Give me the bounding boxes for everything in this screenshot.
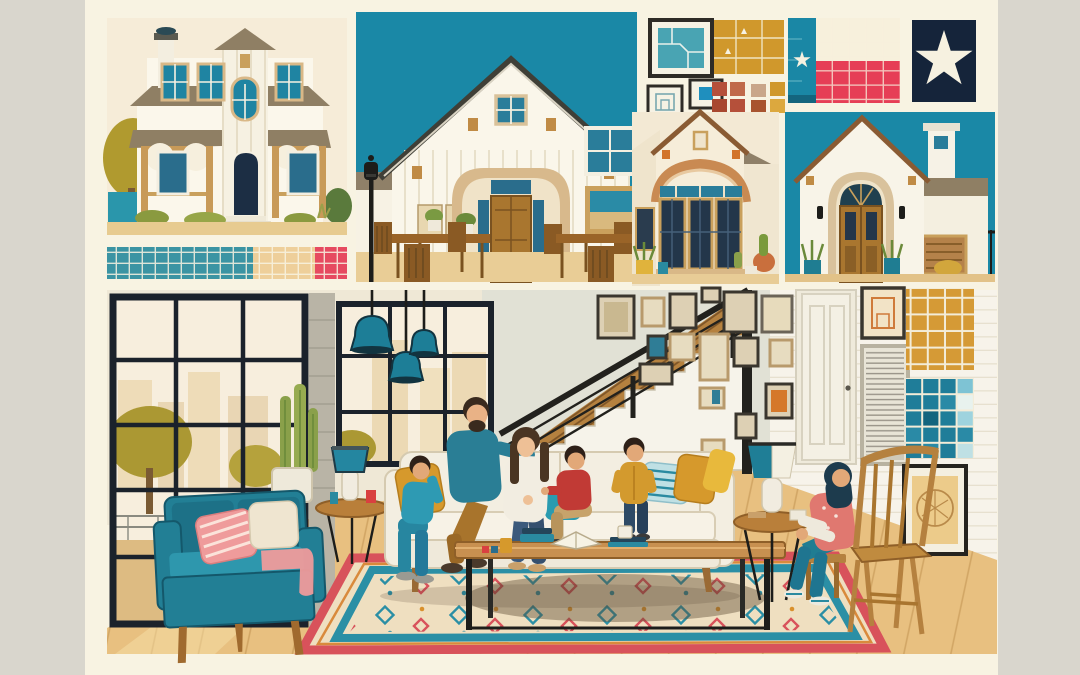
panel-map-collage [648, 20, 785, 118]
front-door [233, 152, 259, 216]
lone-star-tile [912, 20, 976, 102]
texas-flag-mosaic [788, 18, 900, 103]
ground [107, 222, 347, 235]
blinds-window [862, 346, 908, 464]
framed-teal-map [650, 20, 712, 76]
mustard-plat-map [714, 20, 784, 74]
panel-dining-house [356, 12, 642, 282]
illustration-stage [0, 0, 1080, 675]
cat-print [771, 390, 787, 412]
view-tree [108, 406, 192, 478]
framed-circle-sketch [904, 466, 966, 554]
panel-farmhouse-exterior [103, 18, 352, 235]
panel-living-room [107, 288, 997, 664]
door-knob [845, 385, 850, 390]
double-doors [840, 206, 882, 282]
panel-spanish-house [785, 112, 995, 282]
panel-door [796, 290, 856, 464]
cream-pillow [249, 501, 299, 549]
small-orange-frame [862, 288, 904, 338]
panel-bay-window-house [632, 112, 779, 286]
mustard-tile-grid [906, 288, 974, 370]
tile-swatch-strip [107, 247, 347, 279]
